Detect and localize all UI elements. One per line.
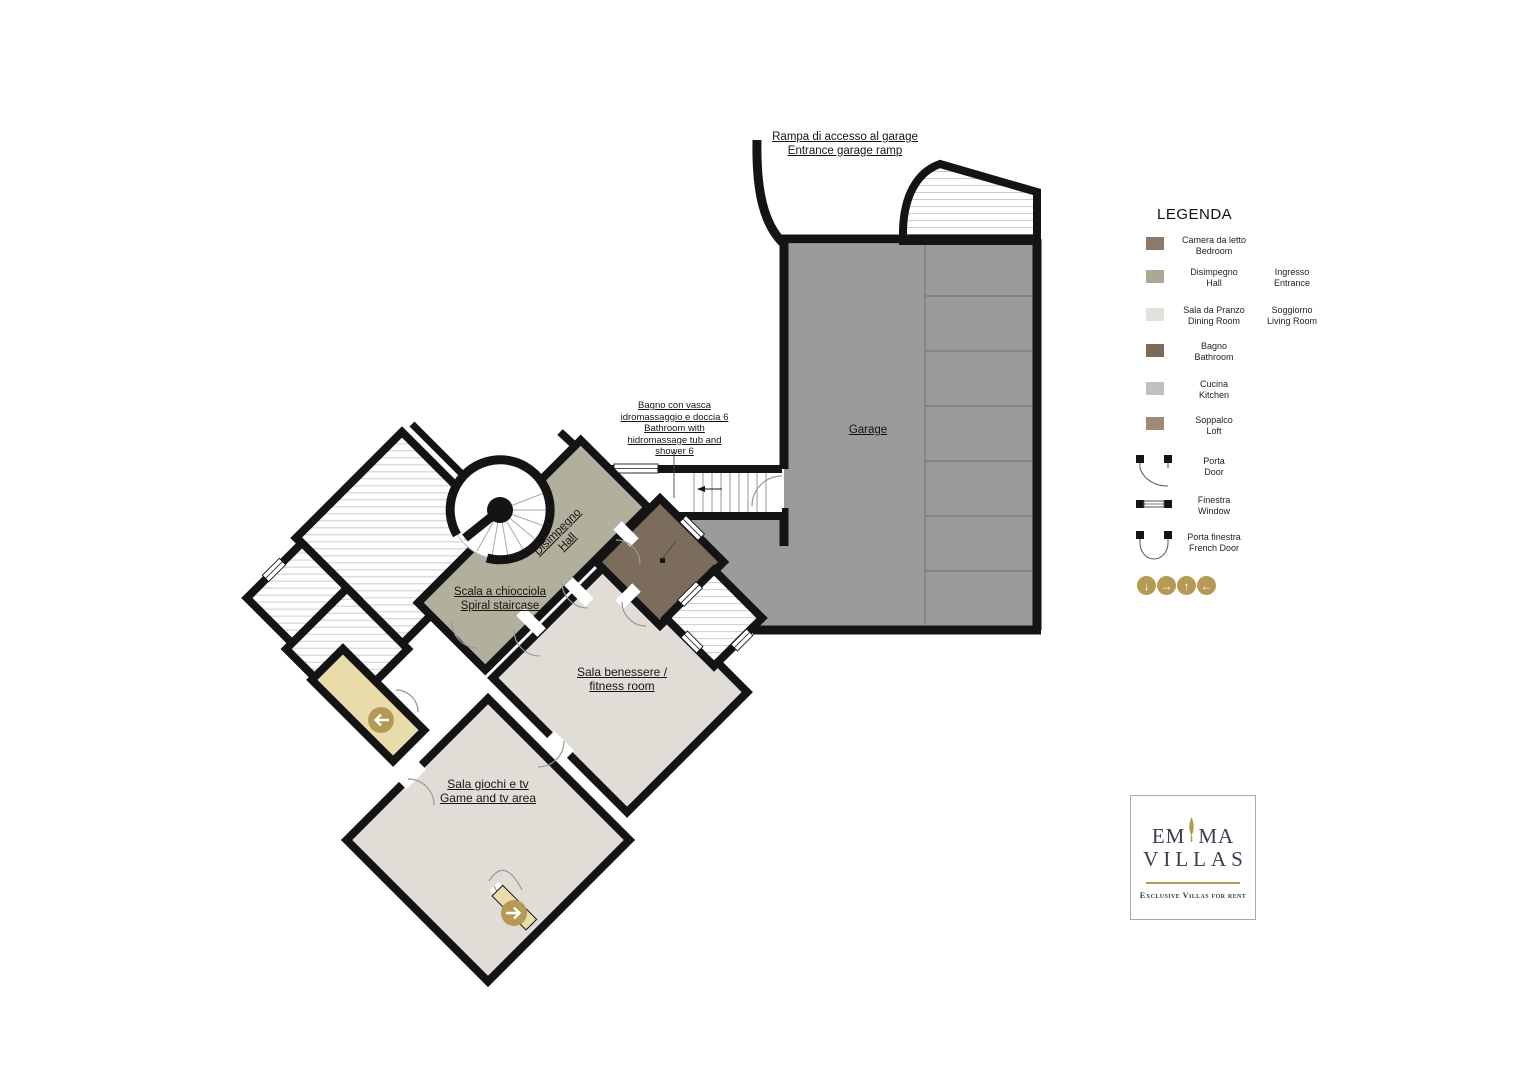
logo-text-villas: VILLAS: [1138, 847, 1248, 872]
bathroom6-label: Bagno con vasca idromassaggio e doccia 6…: [602, 400, 747, 458]
legend-label-kitchen: CucinaKitchen: [1166, 379, 1262, 400]
legend-swatch-dining: [1146, 308, 1164, 321]
logo-wordmark: EM MA: [1152, 816, 1234, 849]
nav-marker-left[interactable]: [368, 707, 394, 733]
legend-label-dining: Sala da PranzoDining Room: [1166, 305, 1262, 326]
ramp-label: Rampa di accesso al garage Entrance gara…: [770, 131, 920, 158]
legend-swatch-hall: [1146, 270, 1164, 283]
legend-label-french-door: Porta finestraFrench Door: [1166, 532, 1262, 553]
nav-right-button[interactable]: →: [1157, 576, 1176, 595]
legend-nav-arrows: ↓ → ↑ ←: [1137, 576, 1216, 595]
nav-up-button[interactable]: ↑: [1177, 576, 1196, 595]
legend-title: LEGENDA: [1157, 206, 1232, 223]
nav-left-button[interactable]: ←: [1197, 576, 1216, 595]
nav-down-button[interactable]: ↓: [1137, 576, 1156, 595]
cypress-tree-icon: [1186, 816, 1197, 843]
floor-plan-drawing: [0, 0, 1526, 1080]
legend-label-living: SoggiornoLiving Room: [1252, 305, 1332, 326]
nav-marker-right[interactable]: [501, 900, 527, 926]
legend-label-hall: DisimpegnoHall: [1166, 267, 1262, 288]
logo-divider: [1146, 882, 1240, 884]
legend-label-bathroom: BagnoBathroom: [1166, 341, 1262, 362]
legend-label-bedroom: Camera da lettoBedroom: [1166, 235, 1262, 256]
legend-swatch-kitchen: [1146, 382, 1164, 395]
garage-label: Garage: [820, 424, 916, 438]
emma-villas-logo: EM MA VILLAS Exclusive Villas for rent: [1130, 795, 1256, 920]
legend-swatch-bathroom: [1146, 344, 1164, 357]
legend-label-door: PortaDoor: [1166, 456, 1262, 477]
game-label: Sala giochi e tv Game and tv area: [406, 778, 570, 805]
logo-tagline: Exclusive Villas for rent: [1140, 890, 1246, 900]
legend-swatch-bedroom: [1146, 237, 1164, 250]
legend-label-entrance: IngressoEntrance: [1252, 267, 1332, 288]
legend-label-loft: SoppalcoLoft: [1166, 415, 1262, 436]
legend-swatch-loft: [1146, 417, 1164, 430]
legend-label-window: FinestraWindow: [1166, 495, 1262, 516]
logo-text-em: EM: [1152, 824, 1186, 849]
logo-text-ma: MA: [1198, 824, 1234, 849]
fitness-label: Sala benessere / fitness room: [540, 666, 704, 693]
spiral-staircase-label: Scala a chiocciola Spiral staircase: [420, 586, 580, 613]
